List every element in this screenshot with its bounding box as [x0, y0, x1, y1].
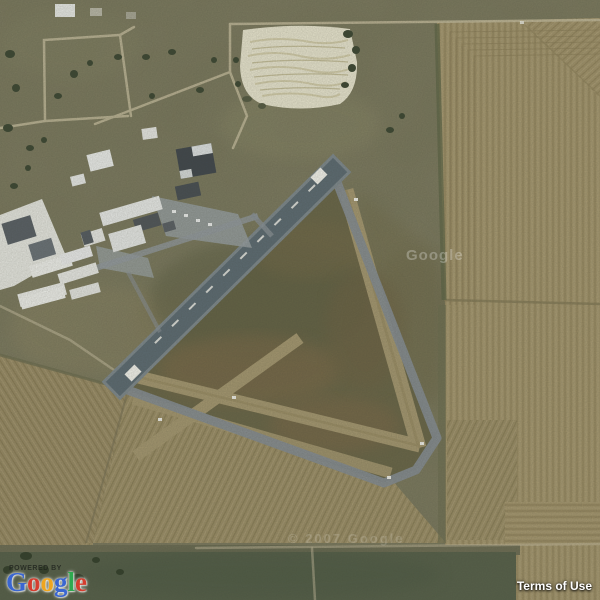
terms-of-use-link[interactable]: Terms of Use — [517, 579, 592, 593]
powered-by-label: POWERED BY — [9, 565, 87, 572]
image-grain-overlay — [0, 0, 600, 600]
google-logo[interactable]: Google — [6, 570, 87, 596]
map-viewport: Google © 2007 Google POWERED BY Google T… — [0, 0, 600, 600]
google-attribution: POWERED BY Google — [6, 565, 87, 596]
satellite-imagery[interactable] — [0, 0, 600, 600]
